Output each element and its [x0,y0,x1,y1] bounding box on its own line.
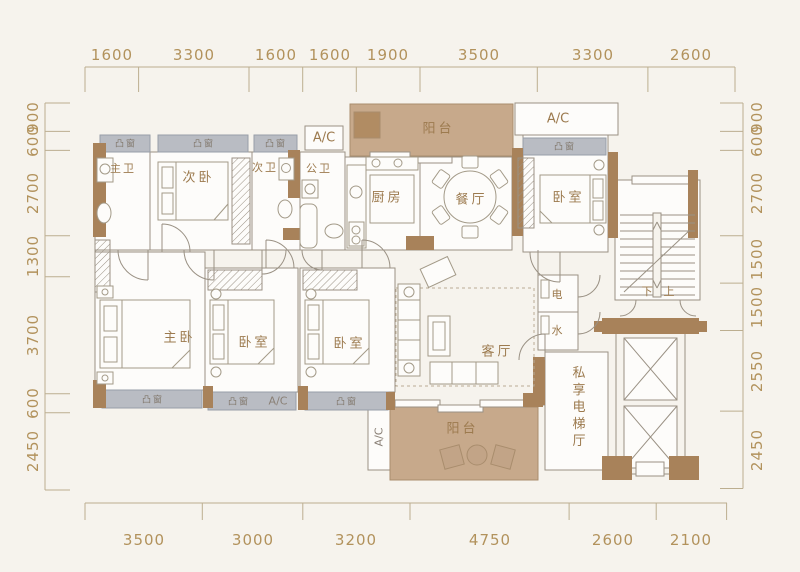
dim-bottom-2: 3000 [232,531,274,549]
dim-right-4: 1500 [748,238,766,280]
dim-left-6: 600 [24,387,42,419]
room-label-public-bath: 公卫 [304,160,332,176]
dim-right-6: 2550 [748,350,766,392]
living-room-sofa [396,257,534,386]
dim-right-5: 1500 [748,286,766,328]
dim-left-7: 2450 [24,430,42,472]
dim-left-5: 3700 [24,314,42,356]
room-label-master-bath: 主卫 [108,160,136,176]
dim-right-7: 2450 [748,429,766,471]
ac-label-top: A/C [313,131,335,146]
dim-top-6: 3500 [458,46,500,64]
room-label-master-bedroom: 主卧 [160,327,195,346]
ac-label-balcony: A/C [373,428,386,447]
dim-top-8: 2600 [670,46,712,64]
dim-right-2: 600 [748,125,766,157]
dim-left-2: 600 [24,125,42,157]
dim-right-3: 2700 [748,172,766,214]
dim-bottom-4: 4750 [469,531,511,549]
bay-window-label-7: 凸窗 [334,395,358,408]
room-label-electric-shaft: 电 [550,286,565,302]
floor-plan-graphic [0,0,800,572]
bay-window-label-1: 凸窗 [113,137,137,150]
room-label-kitchen: 厨房 [368,187,403,206]
dim-top-3: 1600 [255,46,297,64]
stairs-down-label: 下 [640,283,655,299]
room-label-living-room: 客厅 [478,341,513,360]
ac-label-top-right: A/C [547,112,569,127]
dim-bottom-1: 3500 [123,531,165,549]
dim-left-4: 1300 [24,235,42,277]
dim-bottom-6: 2100 [670,531,712,549]
dim-top-5: 1900 [367,46,409,64]
floor-plan: 1600 3300 1600 1600 1900 3500 3300 2600 … [0,0,800,572]
room-label-water-shaft: 水 [550,322,565,338]
stairs-up-label: 上 [662,283,677,299]
room-label-secondary-bath: 次卫 [250,159,278,175]
room-label-bedroom-3: 卧室 [330,333,365,352]
room-label-private-elevator-hall: 私享电梯厅 [568,366,587,451]
room-label-bedroom-right: 卧室 [549,187,584,206]
dim-bottom-3: 3200 [335,531,377,549]
dim-top-1: 1600 [91,46,133,64]
bay-window-label-6: 凸窗 [226,395,250,408]
room-label-balcony-top: 阳台 [419,118,454,137]
dim-top-2: 3300 [173,46,215,64]
ac-label-bay: A/C [269,395,288,408]
dim-left-3: 2700 [24,172,42,214]
bay-window-label-2: 凸窗 [191,137,215,150]
room-label-balcony-bottom: 阳台 [443,418,478,437]
elevators [594,318,707,480]
room-label-bedroom-2: 卧室 [235,332,270,351]
bay-window-label-5: 凸窗 [140,393,164,406]
dim-top-4: 1600 [309,46,351,64]
dim-bottom-5: 2600 [592,531,634,549]
bay-window-label-4: 凸窗 [552,140,576,153]
dim-top-7: 3300 [572,46,614,64]
room-label-dining-room: 餐厅 [452,189,487,208]
bay-window-label-3: 凸窗 [263,137,287,150]
room-label-secondary-bedroom: 次卧 [179,167,214,186]
